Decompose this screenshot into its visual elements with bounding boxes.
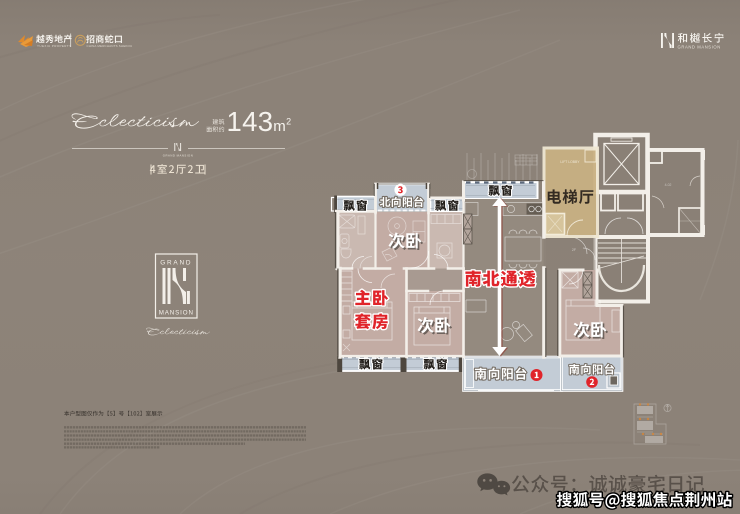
svg-text:YUEXIU PROPERTY: YUEXIU PROPERTY <box>37 44 71 48</box>
svg-text:GRAND: GRAND <box>160 260 192 267</box>
svg-text:MANSION: MANSION <box>159 310 194 317</box>
svg-text:CHINA MERCHANTS SHEKOU: CHINA MERCHANTS SHEKOU <box>87 44 133 48</box>
svg-text:LIFT LOBBY: LIFT LOBBY <box>560 160 580 164</box>
svg-text:GRAND MANSION: GRAND MANSION <box>163 154 193 158</box>
svg-text:4-02: 4-02 <box>665 183 672 187</box>
svg-text:GRAND MANSION: GRAND MANSION <box>678 45 721 50</box>
